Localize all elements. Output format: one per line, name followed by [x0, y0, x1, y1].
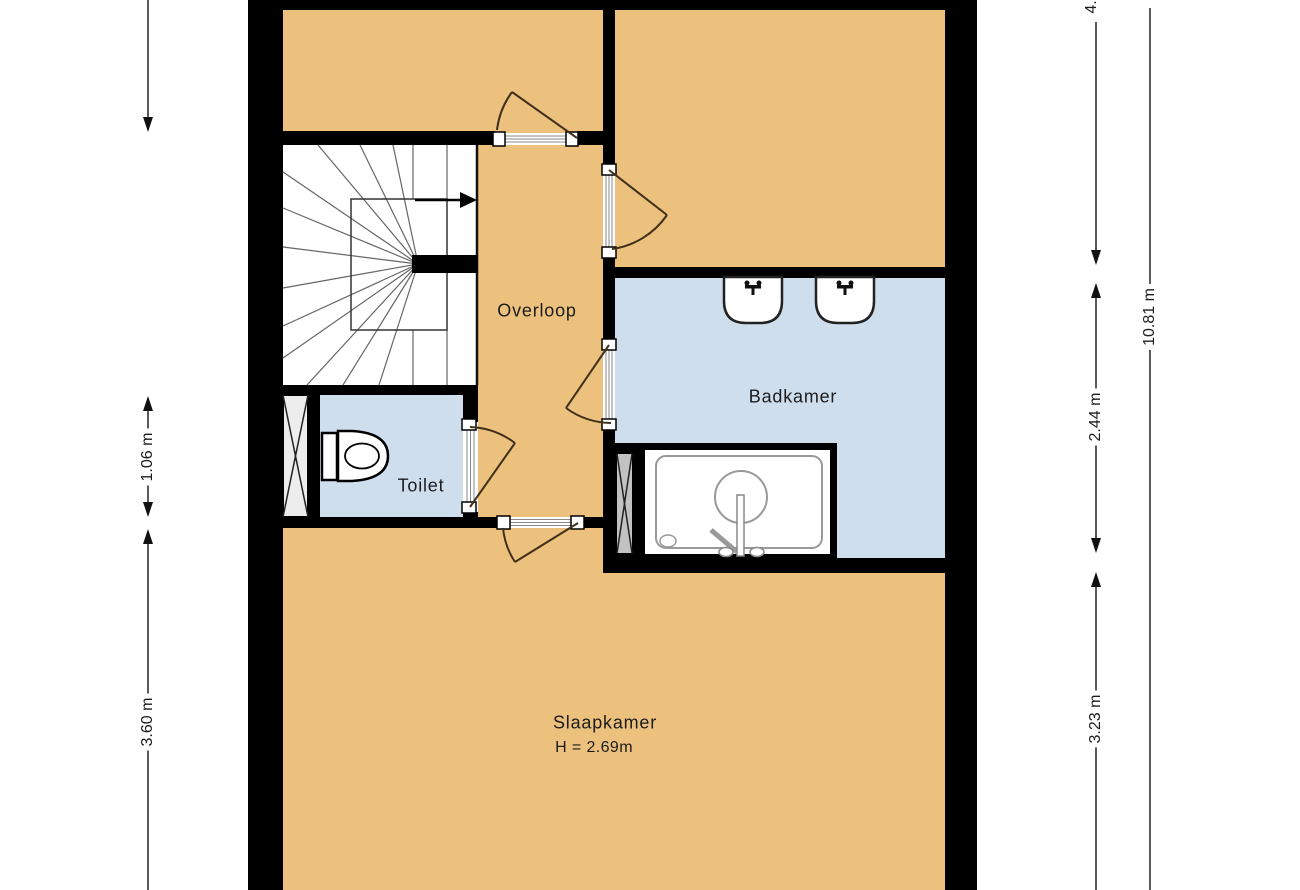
door-swing-icon	[462, 419, 515, 513]
toilet-label: Toilet	[398, 476, 445, 497]
toilet-icon	[322, 431, 388, 481]
slaapkamer-label: Slaapkamer	[553, 713, 657, 734]
stairs-icon	[283, 145, 478, 385]
floorplan-canvas: Overloop Toilet Badkamer Slaapkamer H = …	[0, 0, 1300, 890]
door-swing-icon	[493, 92, 578, 146]
dim-label-slaapkamer-west: 3.60 m	[138, 694, 158, 751]
overloop-label: Overloop	[497, 301, 576, 322]
badkamer-label: Badkamer	[749, 387, 837, 408]
washbasin-icon	[724, 277, 782, 323]
shaft-cross-icon	[283, 395, 308, 517]
dim-label-toilet-width: 1.06 m	[138, 429, 158, 486]
door-swing-icon	[497, 516, 584, 562]
slaapkamer-height-label: H = 2.69m	[555, 739, 633, 757]
dim-label-badkamer: 2.44 m	[1086, 389, 1106, 446]
washbasin-icon	[816, 277, 874, 323]
door-swing-icon	[602, 164, 667, 258]
dim-label-top-partial: 4.	[1082, 0, 1102, 18]
shaft-cross-icon	[617, 454, 632, 553]
dim-label-total-height: 10.81 m	[1140, 284, 1160, 350]
door-swing-icon	[566, 339, 616, 430]
stair-handrail	[412, 255, 478, 273]
bathtub-icon	[645, 450, 830, 557]
dim-label-slaapkamer-east: 3.23 m	[1086, 691, 1106, 748]
